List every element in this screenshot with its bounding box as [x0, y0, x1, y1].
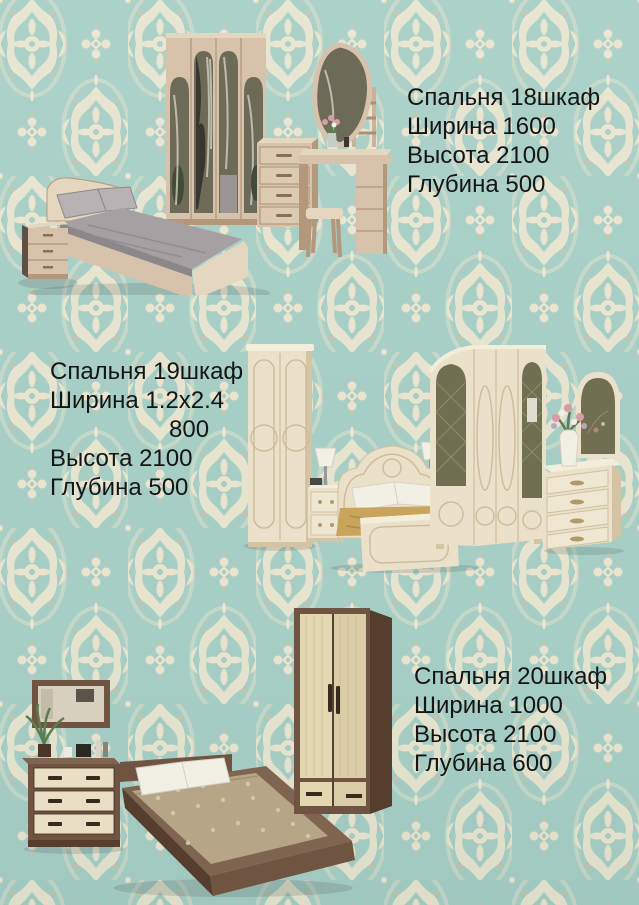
spec-height: Высота 2100: [407, 141, 600, 170]
spec-height: Высота 2100: [50, 444, 243, 473]
chest-of-drawers: [22, 758, 124, 854]
spec-width: Ширина 1600: [407, 112, 600, 141]
wall-mirror: [32, 680, 110, 728]
spec-depth: Глубина 500: [407, 170, 600, 199]
spec-height: Высота 2100: [414, 720, 607, 749]
spec-depth: Глубина 500: [50, 473, 243, 502]
product-18-specs: Спальня 18шкаф Ширина 1600 Высота 2100 Г…: [407, 83, 600, 199]
catalog-page: Спальня 18шкаф Ширина 1600 Высота 2100 Г…: [0, 0, 639, 905]
spec-width-extra: 800: [169, 415, 243, 444]
product-title: Спальня 19шкаф: [50, 357, 243, 386]
product-title: Спальня 20шкаф: [414, 662, 607, 691]
spec-width: Ширина 1000: [414, 691, 607, 720]
sliding-wardrobe: [294, 608, 392, 814]
product-title: Спальня 18шкаф: [407, 83, 600, 112]
spec-width: Ширина 1.2х2.4: [50, 386, 243, 415]
product-19-specs: Спальня 19шкаф Ширина 1.2х2.4 800 Высота…: [50, 357, 243, 502]
spec-depth: Глубина 600: [414, 749, 607, 778]
bedroom-set-20-photo: [8, 598, 398, 900]
product-20-specs: Спальня 20шкаф Ширина 1000 Высота 2100 Г…: [414, 662, 607, 778]
